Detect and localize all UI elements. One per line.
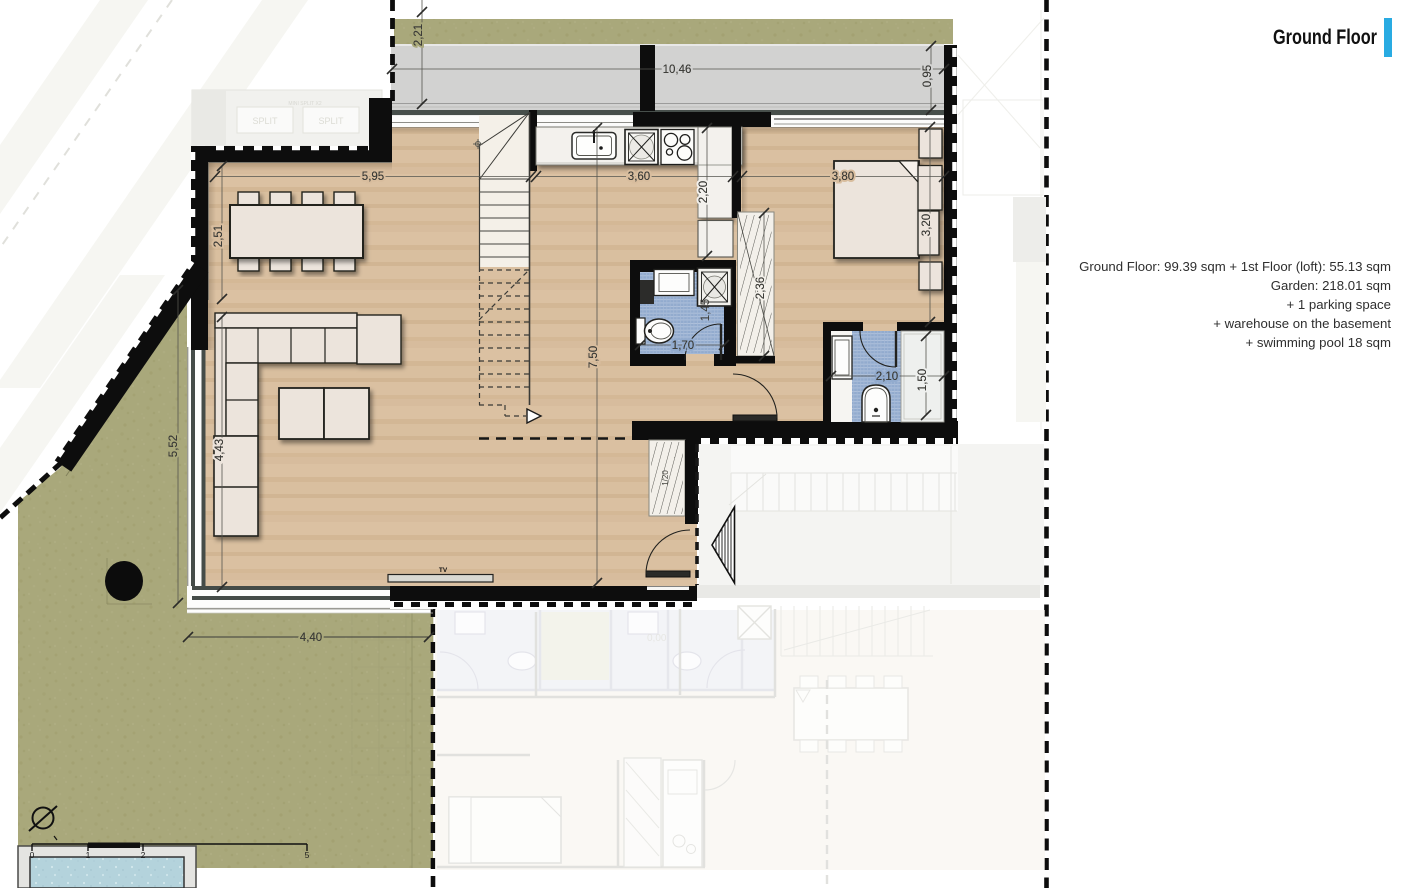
svg-text:2,51: 2,51 — [213, 225, 225, 247]
svg-text:+ warehouse on the basement: + warehouse on the basement — [1213, 316, 1391, 331]
svg-text:3,80: 3,80 — [832, 171, 854, 183]
svg-text:TV: TV — [439, 567, 448, 574]
svg-text:SPLIT: SPLIT — [252, 116, 278, 126]
svg-text:4,40: 4,40 — [300, 632, 322, 644]
svg-text:2,20: 2,20 — [698, 181, 710, 203]
svg-text:5: 5 — [305, 850, 310, 860]
svg-text:Ground Floor: 99.39 sqm + 1st: Ground Floor: 99.39 sqm + 1st Floor (lof… — [1079, 259, 1391, 274]
svg-text:1,70: 1,70 — [672, 340, 694, 352]
svg-text:1: 1 — [86, 850, 91, 860]
svg-text:1/20: 1/20 — [661, 470, 670, 486]
svg-text:0,00: 0,00 — [647, 633, 667, 644]
svg-text:SPLIT: SPLIT — [318, 116, 344, 126]
svg-text:Ground Floor: Ground Floor — [1273, 26, 1377, 49]
svg-text:2,10: 2,10 — [876, 371, 898, 383]
svg-text:0: 0 — [30, 850, 35, 860]
svg-text:3,20: 3,20 — [921, 214, 933, 236]
svg-text:0,95: 0,95 — [922, 65, 934, 87]
svg-text:5,95: 5,95 — [362, 171, 384, 183]
svg-text:1,45: 1,45 — [700, 299, 712, 321]
svg-text:MINI SPLIT X2: MINI SPLIT X2 — [288, 101, 321, 107]
svg-text:Garden: 218.01 sqm: Garden: 218.01 sqm — [1271, 278, 1391, 293]
svg-text:4,43: 4,43 — [214, 439, 226, 461]
svg-text:2,36: 2,36 — [755, 277, 767, 299]
svg-text:2,21: 2,21 — [413, 24, 425, 46]
svg-text:2: 2 — [141, 850, 146, 860]
svg-text:+ 1 parking space: + 1 parking space — [1287, 297, 1391, 312]
svg-text:1,50: 1,50 — [917, 369, 929, 391]
svg-text:+ swimming pool 18 sqm: + swimming pool 18 sqm — [1246, 335, 1392, 350]
svg-text:7,50: 7,50 — [588, 346, 600, 368]
svg-text:3,60: 3,60 — [628, 171, 650, 183]
svg-text:10,46: 10,46 — [663, 64, 692, 76]
svg-text:5,52: 5,52 — [168, 435, 180, 457]
